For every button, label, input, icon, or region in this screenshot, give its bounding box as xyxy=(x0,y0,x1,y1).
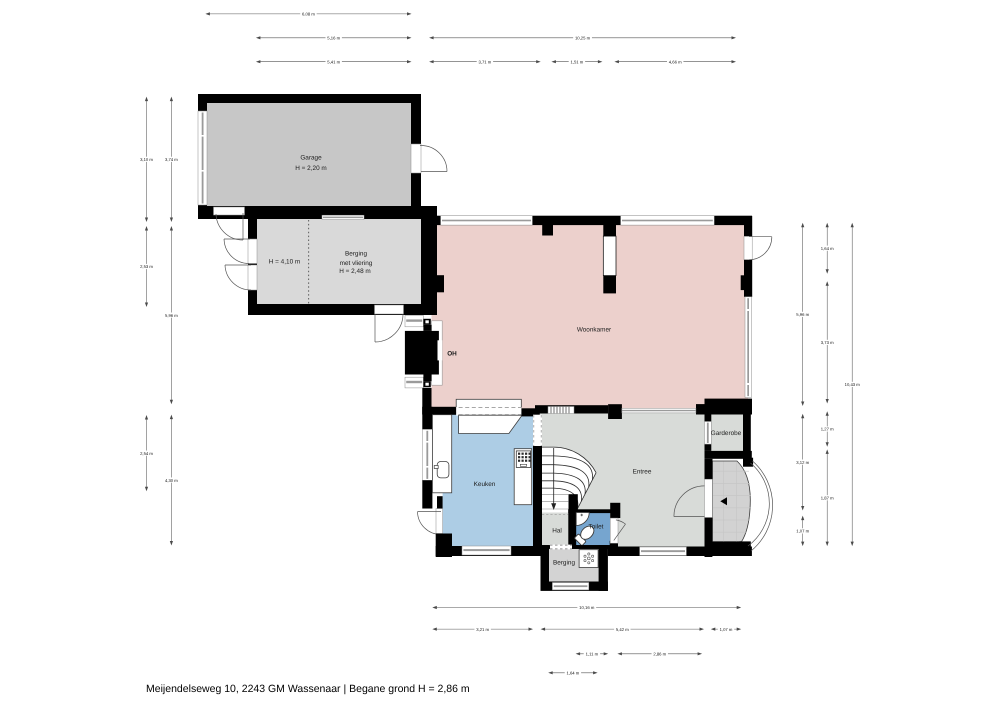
svg-text:2,53 m: 2,53 m xyxy=(140,264,153,269)
svg-text:5,41 m: 5,41 m xyxy=(327,59,340,64)
svg-text:1,87 m: 1,87 m xyxy=(821,495,834,500)
svg-text:3,10 m: 3,10 m xyxy=(140,157,153,162)
svg-text:Berging: Berging xyxy=(553,560,575,567)
svg-text:5,96 m: 5,96 m xyxy=(165,313,178,318)
svg-text:1,07 m: 1,07 m xyxy=(720,627,733,632)
svg-text:4,30 m: 4,30 m xyxy=(165,478,178,483)
svg-text:OH: OH xyxy=(447,351,457,358)
svg-text:5,42 m: 5,42 m xyxy=(616,627,629,632)
svg-text:Garage: Garage xyxy=(300,155,322,162)
svg-text:H = 4,10 m: H = 4,10 m xyxy=(269,259,300,266)
svg-text:10,25 m: 10,25 m xyxy=(575,36,591,41)
svg-text:Toilet: Toilet xyxy=(589,523,604,530)
svg-text:1,27 m: 1,27 m xyxy=(821,427,834,432)
svg-text:10,16 m: 10,16 m xyxy=(579,605,595,610)
svg-text:2,54 m: 2,54 m xyxy=(140,451,153,456)
svg-text:3,21 m: 3,21 m xyxy=(476,627,489,632)
svg-text:5,16 m: 5,16 m xyxy=(327,36,340,41)
svg-text:Meijendelseweg 10, 2243 GM Was: Meijendelseweg 10, 2243 GM Wassenaar | B… xyxy=(146,683,470,695)
svg-text:Garderobe: Garderobe xyxy=(711,430,742,437)
svg-text:6,08 m: 6,08 m xyxy=(302,12,315,17)
svg-text:Hal: Hal xyxy=(552,528,562,535)
svg-text:1,11 m: 1,11 m xyxy=(586,652,599,657)
svg-text:1,64 m: 1,64 m xyxy=(566,671,579,676)
svg-text:1,51 m: 1,51 m xyxy=(570,59,583,64)
svg-text:Woonkamer: Woonkamer xyxy=(577,327,612,334)
svg-text:1,07 m: 1,07 m xyxy=(796,529,809,534)
svg-text:4,66 m: 4,66 m xyxy=(669,59,682,64)
svg-text:3,74 m: 3,74 m xyxy=(165,157,178,162)
svg-text:Entree: Entree xyxy=(633,469,652,476)
svg-text:Berging: Berging xyxy=(345,251,367,258)
svg-text:H = 2,20 m: H = 2,20 m xyxy=(295,165,326,172)
svg-text:2,86 m: 2,86 m xyxy=(653,652,666,657)
svg-text:3,71 m: 3,71 m xyxy=(478,59,491,64)
svg-text:met vliering: met vliering xyxy=(340,260,373,267)
svg-text:1,64 m: 1,64 m xyxy=(821,246,834,251)
svg-text:H = 2,48 m: H = 2,48 m xyxy=(339,268,370,275)
svg-text:Keuken: Keuken xyxy=(474,481,496,488)
svg-text:3,73 m: 3,73 m xyxy=(821,340,834,345)
svg-text:3,12 m: 3,12 m xyxy=(796,460,809,465)
svg-text:10,43 m: 10,43 m xyxy=(845,382,861,387)
svg-text:5,96 m: 5,96 m xyxy=(796,312,809,317)
